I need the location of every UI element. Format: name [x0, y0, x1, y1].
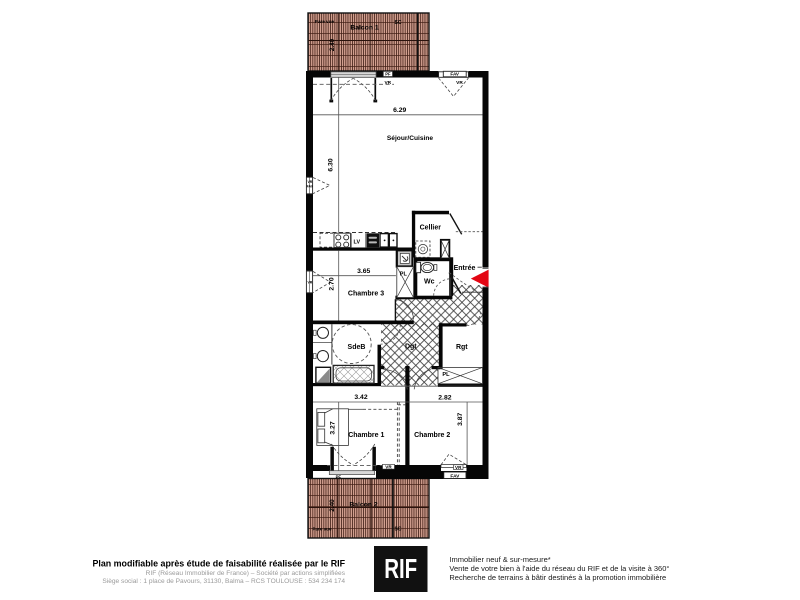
svg-text:Balcon 1: Balcon 1 — [350, 25, 379, 32]
svg-text:Entrée: Entrée — [454, 265, 476, 272]
svg-text:LV: LV — [354, 239, 361, 245]
svg-text:PL: PL — [400, 272, 408, 278]
svg-text:Plan modifiable après étude de: Plan modifiable après étude de faisabili… — [92, 559, 345, 569]
svg-text:Pare vue: Pare vue — [315, 19, 335, 24]
svg-text:2.70: 2.70 — [329, 277, 336, 290]
svg-text:Wc: Wc — [424, 278, 435, 285]
svg-text:Siège social : 1 place de Pavo: Siège social : 1 place de Pavours, 31130… — [102, 578, 345, 585]
svg-text:VR: VR — [307, 180, 312, 184]
svg-text:Immobilier neuf & sur-mesure*: Immobilier neuf & sur-mesure* — [449, 555, 550, 564]
svg-text:3.87: 3.87 — [457, 412, 464, 425]
svg-text:Cellier: Cellier — [420, 224, 442, 231]
svg-text:Rgt: Rgt — [456, 344, 468, 351]
svg-text:PF: PF — [336, 474, 342, 479]
svg-text:2.82: 2.82 — [438, 394, 451, 401]
svg-text:Séjour/Cuisine: Séjour/Cuisine — [387, 135, 433, 142]
svg-text:Pare vue: Pare vue — [312, 527, 332, 532]
svg-text:VR: VR — [456, 80, 463, 86]
svg-text:VR: VR — [384, 80, 391, 86]
svg-text:SdeB: SdeB — [348, 344, 366, 351]
svg-text:RIF (Réseau Immobilier de Fran: RIF (Réseau Immobilier de France) – Soci… — [146, 570, 346, 577]
svg-text:3.42: 3.42 — [354, 394, 367, 401]
svg-text:VR: VR — [455, 465, 462, 470]
svg-text:3.65: 3.65 — [357, 268, 370, 275]
svg-text:Balcon 2: Balcon 2 — [349, 502, 378, 509]
svg-text:Chambre 2: Chambre 2 — [414, 432, 450, 439]
svg-text:Dgt: Dgt — [405, 344, 417, 351]
svg-text:3.27: 3.27 — [329, 421, 336, 434]
svg-text:FAV: FAV — [450, 72, 460, 77]
svg-text:SC: SC — [395, 20, 402, 26]
svg-text:SC: SC — [395, 527, 402, 533]
svg-text:VR: VR — [385, 464, 392, 469]
svg-text:FAV: FAV — [450, 474, 460, 480]
svg-text:PF: PF — [385, 71, 391, 76]
svg-text:2.40: 2.40 — [329, 499, 336, 512]
svg-text:RIF: RIF — [384, 553, 417, 584]
svg-text:6.30: 6.30 — [328, 158, 335, 171]
svg-text:VR: VR — [307, 281, 312, 285]
svg-text:FAV: FAV — [307, 185, 314, 189]
svg-text:Chambre 3: Chambre 3 — [348, 291, 384, 298]
svg-text:2.40: 2.40 — [329, 38, 336, 51]
svg-text:Chambre 1: Chambre 1 — [348, 432, 384, 439]
svg-text:Vente de votre bien à l'aide d: Vente de votre bien à l'aide du réseau d… — [449, 564, 669, 573]
svg-text:Recherche de terrains à bâtir: Recherche de terrains à bâtir destinés à… — [449, 573, 666, 582]
svg-text:6.29: 6.29 — [393, 107, 406, 114]
svg-text:PL: PL — [442, 372, 450, 378]
